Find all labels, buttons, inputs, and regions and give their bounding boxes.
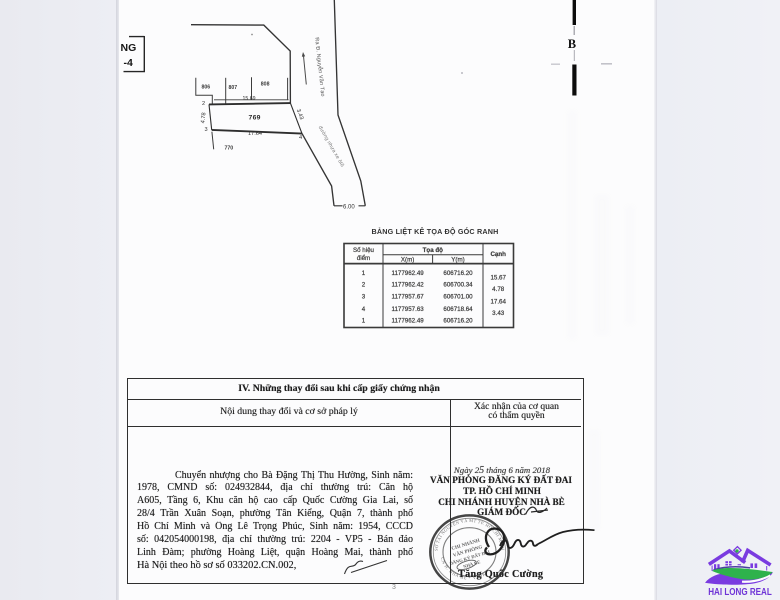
svg-text:HAI LONG REAL: HAI LONG REAL bbox=[708, 587, 772, 598]
